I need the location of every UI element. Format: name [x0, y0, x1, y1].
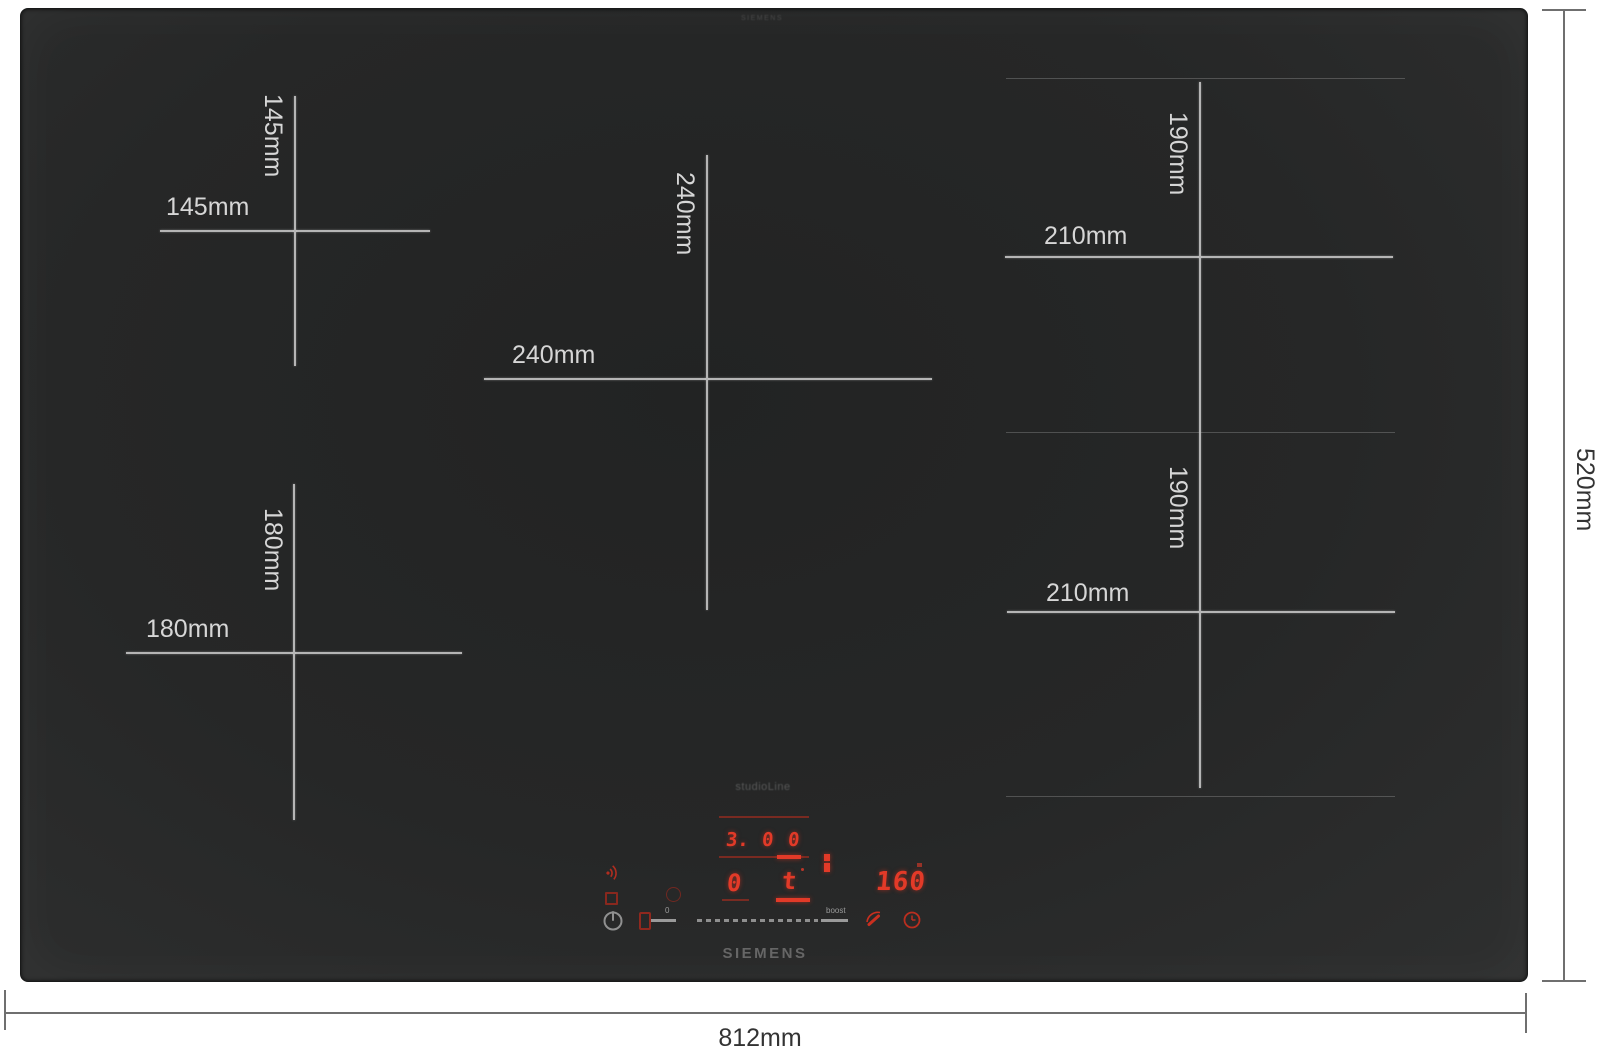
- slider-min-label: 0: [665, 907, 669, 915]
- zone-rear-left-depth-label: 145mm: [258, 94, 287, 177]
- zone-display-right[interactable]: t: [781, 869, 798, 893]
- pause-icon: [824, 854, 830, 861]
- power-level-digit-3: 0: [787, 831, 800, 850]
- overall-depth-label: 520mm: [1570, 448, 1599, 531]
- pot-indicator-icon: [666, 887, 681, 902]
- slider-left-segment[interactable]: [651, 919, 676, 922]
- cooktop-glass-surface: [20, 8, 1528, 982]
- control-lock-icon[interactable]: [639, 912, 651, 930]
- flex-zone-boundary-bottom: [1006, 796, 1395, 797]
- power-icon[interactable]: [601, 908, 625, 937]
- timer-clock-icon[interactable]: [902, 910, 922, 935]
- power-level-digit-1: 3.: [725, 831, 750, 850]
- wipe-protection-icon[interactable]: [864, 908, 884, 933]
- slider-right-segment[interactable]: [821, 919, 848, 922]
- zone-center-width-label: 240mm: [512, 341, 595, 370]
- zone-display-left-underline: [722, 899, 749, 901]
- zone-front-left-width-label: 180mm: [146, 615, 229, 644]
- power-level-digit-2: 0: [761, 831, 774, 850]
- timer-display: 160: [875, 869, 927, 895]
- zone-rear-right-depth-label: 190mm: [1163, 112, 1192, 195]
- zone-rear-right-width-label: 210mm: [1044, 222, 1127, 251]
- overall-width-label: 812mm: [700, 1024, 820, 1051]
- degree-dot-icon: [801, 868, 804, 871]
- zone-front-right-width-label: 210mm: [1046, 579, 1129, 608]
- zone-front-right-depth-label: 190mm: [1163, 466, 1192, 549]
- pause-icon-lower: [824, 863, 830, 872]
- zone-rear-left-width-label: 145mm: [166, 193, 249, 222]
- siemens-logo: SIEMENS: [690, 945, 840, 962]
- slider-max-label: boost: [826, 907, 846, 915]
- indicator-square-icon: [605, 892, 618, 905]
- edge-etch-text: SIEMENS: [712, 15, 812, 22]
- zone-front-left-depth-label: 180mm: [258, 508, 287, 591]
- flex-zone-boundary-top: [1006, 78, 1405, 79]
- display-active-segment: [777, 855, 801, 859]
- studioline-logo: studioLine: [713, 781, 813, 793]
- zone-display-left[interactable]: 0: [726, 871, 743, 895]
- timer-unit-mark: [917, 863, 922, 867]
- display-frame-top-line: [719, 816, 809, 818]
- zone-display-right-underline: [776, 898, 810, 902]
- power-slider-track[interactable]: [697, 919, 818, 922]
- zone-center-depth-label: 240mm: [670, 172, 699, 255]
- product-dimension-diagram: SIEMENS 145mm 145mm 180mm 180mm 240mm 24…: [0, 0, 1600, 1051]
